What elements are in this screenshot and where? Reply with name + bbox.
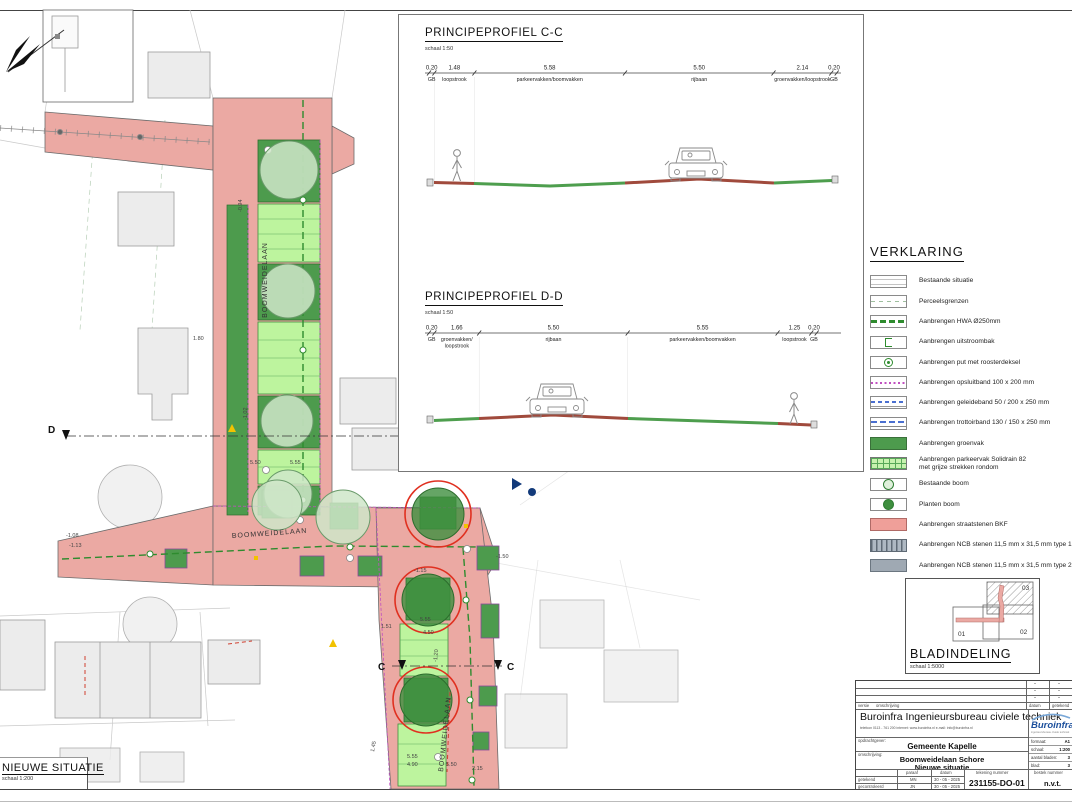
bestek-label: bestek nummer	[1034, 770, 1063, 775]
legend-swatch-uitstroombak	[870, 336, 907, 349]
svg-text:5.50: 5.50	[250, 460, 261, 466]
legend-item: Aanbrengen HWA Ø250mm	[870, 312, 1072, 332]
gecontroleerd-label: gecontroleerd	[858, 784, 884, 789]
svg-text:parkeervakken/boomvakken: parkeervakken/boomvakken	[669, 337, 735, 343]
legend-item: Aanbrengen opsluitband 100 x 200 mm	[870, 372, 1072, 392]
legend-swatch-perceelsgrenzen	[870, 295, 907, 308]
legend-item: Aanbrengen parkeervak Solidrain 82 met g…	[870, 454, 1072, 474]
legend-item: Bestaande situatie	[870, 271, 1072, 291]
getekend-label: getekend	[858, 777, 875, 782]
svg-text:-1.20: -1.20	[433, 649, 440, 662]
svg-text:Buroinfra: Buroinfra	[1031, 720, 1072, 731]
revision-dash: -	[1034, 695, 1036, 701]
legend-item: Aanbrengen groenvak	[870, 433, 1072, 453]
planten-boom-icon	[883, 499, 894, 510]
legend-item: Aanbrengen uitstroombak	[870, 332, 1072, 352]
dd-dimension-labels: GB groenvakken/ loopstrook rijbaan parke…	[428, 337, 818, 350]
svg-text:parkeervakken/boomvakken: parkeervakken/boomvakken	[517, 77, 583, 83]
revision-col-versie: versie	[858, 703, 869, 708]
legend-swatch-hwa	[870, 315, 907, 328]
legend-item: Aanbrengen put met roosterdeksel	[870, 352, 1072, 372]
bladen-row: aantal bladen:3	[1029, 753, 1072, 761]
svg-text:groenvakken/: groenvakken/	[441, 337, 473, 343]
svg-text:1.80: 1.80	[193, 336, 204, 342]
title-block: - - - - - - versie omschrijving datum ge…	[855, 680, 1072, 790]
cc-dimension-labels: GB loopstrook parkeervakken/boomvakken r…	[428, 77, 838, 83]
legend-swatch-groenvak	[870, 437, 907, 450]
sheet-label-02: 02	[1020, 629, 1028, 636]
svg-text:GB: GB	[830, 77, 838, 83]
plan-title-box: NIEUWE SITUATIE schaal 1:200	[0, 757, 88, 789]
sheet-label-03: 03	[1022, 585, 1030, 592]
bladindeling-scale: schaal 1:5000	[910, 664, 944, 670]
svg-text:5.55: 5.55	[407, 754, 418, 760]
cc-dimension-values: 0.20 1.48 5.58 5.50 2.14 0.20	[426, 66, 841, 72]
svg-text:rijbaan: rijbaan	[691, 77, 707, 83]
legend-swatch-geleideband	[870, 396, 907, 409]
profiles-panel: PRINCIPEPROFIEL C-C schaal 1:50 PRINCIPE…	[398, 14, 864, 472]
legend-item: Aanbrengen straatstenen BKF	[870, 515, 1072, 535]
plan-title: NIEUWE SITUATIE	[2, 762, 104, 775]
cc-person-icon	[453, 150, 462, 181]
svg-text:BOOMWEIDELAAN: BOOMWEIDELAAN	[262, 242, 269, 318]
plan-scale: schaal 1:200	[2, 776, 87, 782]
gecontroleerd-paraaf: JN	[910, 784, 915, 789]
svg-text:5.58: 5.58	[544, 66, 556, 72]
schaal-row: schaal:1:200	[1029, 745, 1072, 753]
dd-person-icon	[790, 393, 799, 424]
svg-text:-1.15: -1.15	[414, 568, 427, 574]
svg-text:1.45: 1.45	[370, 741, 378, 753]
svg-text:-1.02: -1.02	[243, 407, 249, 420]
svg-text:ingenieursbureau civiele techn: ingenieursbureau civiele techniek	[1031, 730, 1070, 734]
svg-text:groenvakken/loopstrook: groenvakken/loopstrook	[774, 77, 831, 83]
legend-item: Planten boom	[870, 494, 1072, 514]
getekend-paraaf: MN	[910, 777, 917, 782]
gecontroleerd-datum: 30 - 05 - 2025	[934, 784, 960, 789]
legend-item: Perceelsgrenzen	[870, 291, 1072, 311]
legend-swatch-parkeervak	[870, 457, 907, 470]
legend-item: Bestaande boom	[870, 474, 1072, 494]
legend-swatch-put	[870, 356, 907, 369]
svg-text:-1.50: -1.50	[496, 554, 509, 560]
put-roosterdeksel-icon	[884, 358, 893, 367]
svg-text:0.20: 0.20	[828, 66, 840, 72]
legend-item: Aanbrengen geleideband 50 / 200 x 250 mm	[870, 393, 1072, 413]
svg-text:0.20: 0.20	[426, 326, 438, 332]
legend-item: Aanbrengen trottoirband 130 / 150 x 250 …	[870, 413, 1072, 433]
blad-row: blad:3	[1029, 761, 1072, 769]
legend-item: Aanbrengen NCB stenen 11,5 mm x 31,5 mm …	[870, 555, 1072, 575]
dd-ground	[427, 415, 817, 428]
col-tekening: tekening nummer	[976, 770, 1008, 775]
bladindeling-title: BLADINDELING	[910, 647, 1011, 663]
svg-text:rijbaan: rijbaan	[546, 337, 562, 343]
svg-text:5.55: 5.55	[420, 617, 431, 623]
hydrant-symbol	[512, 478, 536, 496]
svg-text:GB: GB	[428, 77, 436, 83]
legend-swatch-bestaande-boom	[870, 478, 907, 491]
svg-text:-1.08: -1.08	[66, 533, 79, 539]
getekend-datum: 30 - 05 - 2025	[934, 777, 960, 782]
svg-text:0.20: 0.20	[426, 66, 438, 72]
svg-text:-0.94: -0.94	[238, 199, 244, 212]
profiles-drawing: 0.20 1.48 5.58 5.50 2.14 0.20 GB loopstr…	[399, 15, 861, 469]
revision-col-omschrijving: omschrijving	[876, 703, 899, 708]
svg-text:loopstrook: loopstrook	[445, 344, 470, 350]
section-label-d-left: D	[48, 425, 55, 436]
cc-dimension-line	[425, 71, 841, 184]
revision-col-getekend: getekend	[1052, 703, 1069, 708]
legend-title: VERKLARING	[870, 244, 964, 262]
sign-symbol	[52, 16, 78, 48]
legend-swatch-straatstenen-bkf	[870, 518, 907, 531]
formaat-row: formaat:A1	[1029, 737, 1072, 745]
legend-swatch-ncb-type2	[870, 559, 907, 572]
company-contact: telefoon 0113 - 761 200 internet: www.bu…	[860, 726, 973, 730]
legend-swatch-ncb-type1	[870, 539, 907, 552]
revision-dash: -	[1034, 688, 1036, 694]
green-strip	[227, 205, 248, 515]
bestek-value: n.v.t.	[1044, 779, 1061, 788]
col-datum: datum	[940, 770, 952, 775]
revision-dash: -	[1034, 681, 1036, 687]
revision-dash: -	[1058, 695, 1060, 701]
legend-swatch-planten-boom	[870, 498, 907, 511]
svg-text:1.25: 1.25	[789, 326, 801, 332]
company-logo: Buroinfra ingenieursbureau civiele techn…	[1029, 710, 1072, 736]
revision-col-datum: datum	[1029, 703, 1041, 708]
svg-text:-1.13: -1.13	[69, 543, 82, 549]
svg-text:2.14: 2.14	[797, 66, 809, 72]
legend-swatch-opsluitband	[870, 376, 907, 389]
client-name: Gemeente Kapelle	[856, 742, 1028, 751]
svg-text:4.50: 4.50	[423, 630, 434, 636]
dd-dimension-values: 0.20 1.66 5.50 5.55 1.25 0.20	[426, 326, 821, 332]
revision-dash: -	[1058, 688, 1060, 694]
svg-text:loopstrook: loopstrook	[782, 337, 807, 343]
svg-text:GB: GB	[428, 337, 436, 343]
col-paraaf: paraaf	[906, 770, 918, 775]
dd-car-icon	[526, 384, 588, 417]
bestaande-boom-icon	[883, 479, 894, 490]
svg-text:loopstrook: loopstrook	[442, 77, 467, 83]
north-arrow	[6, 10, 133, 102]
svg-text:1.51: 1.51	[381, 624, 392, 630]
svg-text:5.55: 5.55	[290, 460, 301, 466]
cc-ground	[427, 176, 838, 186]
dd-dimension-line	[425, 331, 841, 420]
bladindeling-panel: 01 02 03 BLADINDELING schaal 1:5000	[905, 578, 1040, 674]
svg-text:0.20: 0.20	[808, 326, 820, 332]
drawing-number: 231155-DO-01	[969, 778, 1025, 788]
svg-text:GB: GB	[810, 337, 818, 343]
section-label-c-left: C	[378, 662, 385, 673]
svg-text:5.55: 5.55	[697, 326, 709, 332]
svg-text:1.66: 1.66	[451, 326, 463, 332]
legend-swatch-bestaande-situatie	[870, 275, 907, 288]
bladindeling-map: 01 02 03	[906, 579, 1037, 645]
uitstroombak-icon	[885, 338, 892, 347]
svg-text:5.50: 5.50	[446, 762, 457, 768]
sheet-label-01: 01	[958, 631, 966, 638]
cc-car-icon	[665, 148, 727, 181]
drawing-sheet: D D C C BOOMWEIDELAAN BOOMWEIDELAAN BOOM…	[0, 0, 1072, 804]
svg-text:2.15: 2.15	[472, 766, 483, 772]
svg-text:5.50: 5.50	[693, 66, 705, 72]
legend-item: Aanbrengen NCB stenen 11,5 mm x 31,5 mm …	[870, 535, 1072, 555]
svg-text:4.90: 4.90	[407, 762, 418, 768]
legend-swatch-trottoirband	[870, 417, 907, 430]
svg-text:1.48: 1.48	[449, 66, 461, 72]
legend-panel: VERKLARING Bestaande situatie Perceelsgr…	[870, 243, 1072, 575]
section-label-c-right: C	[507, 662, 514, 673]
svg-text:5.50: 5.50	[548, 326, 560, 332]
revision-dash: -	[1058, 681, 1060, 687]
